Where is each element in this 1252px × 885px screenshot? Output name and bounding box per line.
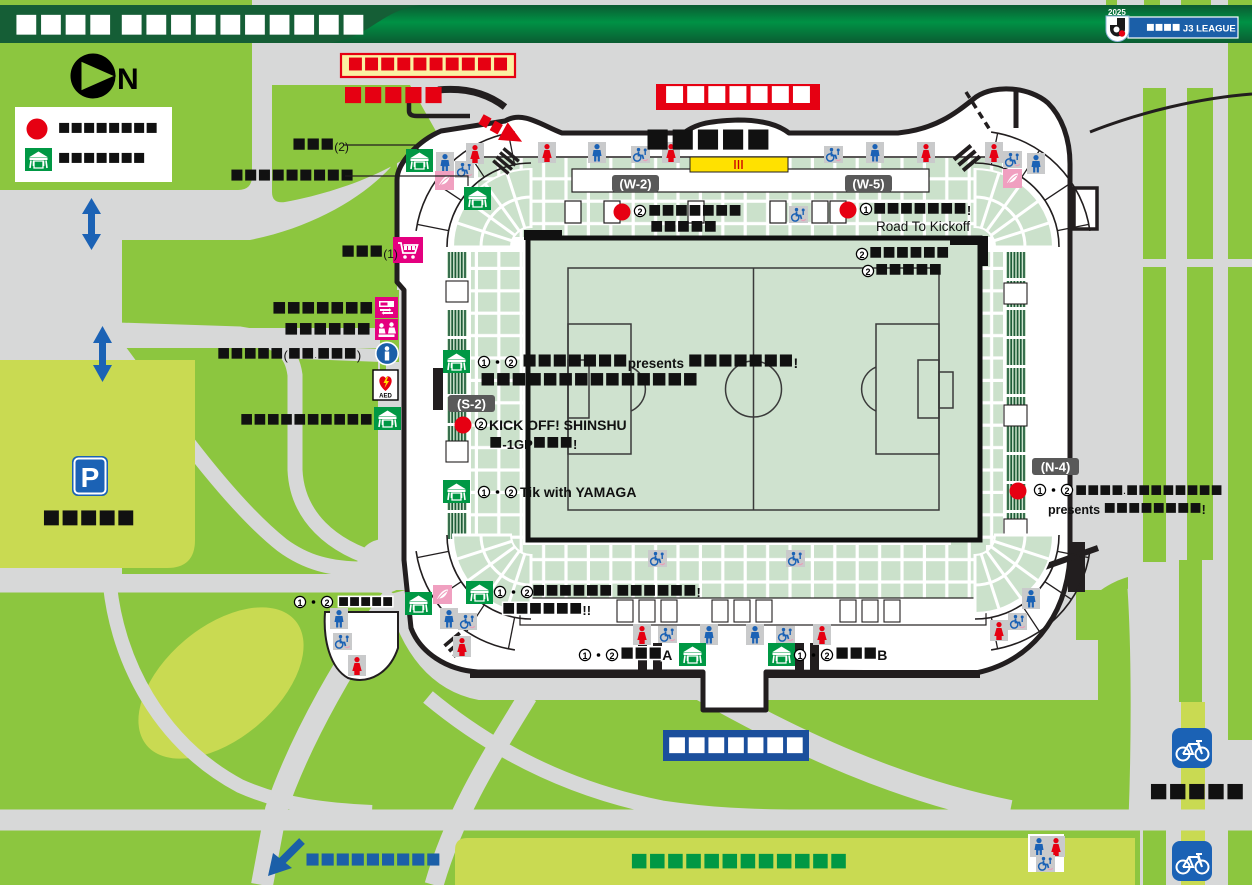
- svg-text:■■■■■■■■■: ■■■■■■■■■: [230, 161, 354, 187]
- svg-text:■■■■■: ■■■■■: [1149, 772, 1245, 808]
- svg-text:Tik with YAMAGA: Tik with YAMAGA: [520, 484, 636, 500]
- svg-text:(S-2): (S-2): [457, 397, 486, 412]
- svg-text:■■■■■(■■·■■■): ■■■■■(■■·■■■): [217, 340, 361, 365]
- svg-text:Road To Kickoff: Road To Kickoff: [876, 219, 970, 234]
- svg-text:■■■■■■■■■■: ■■■■■■■■■■: [347, 48, 508, 78]
- svg-text:■■■■■■■■■■: ■■■■■■■■■■: [240, 406, 373, 431]
- svg-text:■■■■■■■■■: ■■■■■■■■■: [305, 845, 441, 873]
- svg-text:■■■■■■■: ■■■■■■■: [664, 74, 812, 113]
- svg-text:■■■■■■: ■■■■■■: [284, 315, 371, 342]
- svg-text:■■■■■■■!: ■■■■■■■!: [873, 195, 971, 220]
- svg-text:■■■■■: ■■■■■: [645, 114, 771, 161]
- svg-text:■■■■■: ■■■■■: [338, 590, 393, 611]
- svg-text:(W-2): (W-2): [619, 177, 651, 192]
- svg-text:N: N: [117, 63, 139, 96]
- svg-text:■■■■■: ■■■■■: [42, 499, 135, 534]
- svg-text:■■■■■■■: ■■■■■■■: [667, 726, 804, 762]
- svg-text:(N-4): (N-4): [1041, 460, 1071, 475]
- svg-text:■■■■■■■■■■■■■■: ■■■■■■■■■■■■■■: [480, 365, 698, 393]
- svg-text:■-1GP■■■!: ■-1GP■■■!: [489, 429, 577, 454]
- svg-text:■■■■■: ■■■■■: [875, 256, 942, 281]
- svg-text:■■■■■■■■: ■■■■■■■■: [58, 116, 158, 139]
- svg-text:■■■■■■■: ■■■■■■■: [58, 146, 145, 169]
- svg-text:■■■■■■!!: ■■■■■■!!: [502, 595, 591, 620]
- svg-text:■■■■■: ■■■■■: [650, 213, 717, 238]
- svg-text:■■■■■: ■■■■■: [343, 76, 444, 113]
- svg-text:■■■■■■■■■■■■: ■■■■■■■■■■■■: [630, 844, 847, 877]
- svg-text:■■■■ ■■■■■■■■■■: ■■■■ ■■■■■■■■■■: [14, 0, 366, 46]
- svg-text:(W-5): (W-5): [852, 177, 884, 192]
